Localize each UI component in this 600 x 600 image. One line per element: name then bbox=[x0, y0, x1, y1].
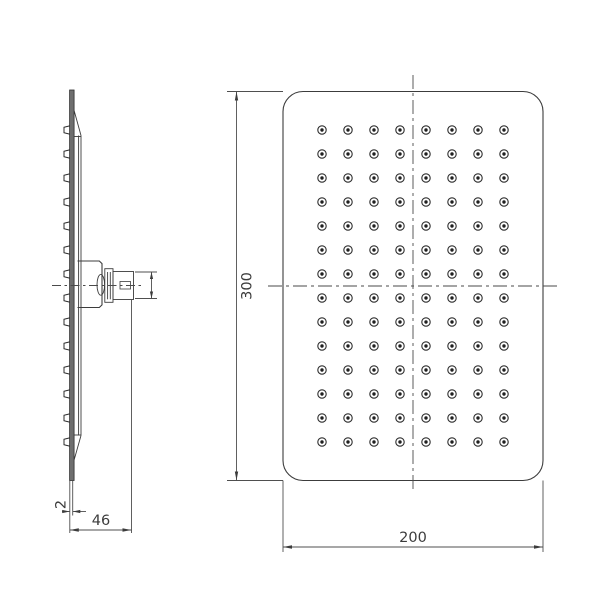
nozzle-center bbox=[372, 176, 375, 179]
nozzle-center bbox=[476, 440, 479, 443]
nozzle-center bbox=[346, 416, 349, 419]
nozzle-center bbox=[346, 248, 349, 251]
nozzle-center bbox=[398, 392, 401, 395]
nozzle-center bbox=[346, 224, 349, 227]
nozzle-center bbox=[372, 344, 375, 347]
nozzle-center bbox=[502, 200, 505, 203]
nozzle-center bbox=[450, 416, 453, 419]
nozzle-center bbox=[398, 344, 401, 347]
nozzle-center bbox=[502, 440, 505, 443]
dim-label-plate-thickness: 2 bbox=[54, 500, 70, 509]
nozzle-center bbox=[424, 224, 427, 227]
nozzle-center bbox=[398, 272, 401, 275]
nozzle-center bbox=[502, 368, 505, 371]
nozzle-center bbox=[502, 224, 505, 227]
side-nozzle bbox=[64, 390, 70, 398]
nozzle-center bbox=[450, 152, 453, 155]
nozzle-center bbox=[450, 368, 453, 371]
nozzle-center bbox=[502, 128, 505, 131]
nozzle-center bbox=[398, 320, 401, 323]
nozzle-center bbox=[502, 416, 505, 419]
side-nozzle bbox=[64, 294, 70, 302]
nozzle-center bbox=[450, 272, 453, 275]
nozzle-center bbox=[398, 128, 401, 131]
nozzle-center bbox=[476, 272, 479, 275]
dim-label-height: 300 bbox=[240, 272, 256, 300]
nozzle-center bbox=[424, 152, 427, 155]
nozzle-center bbox=[320, 128, 323, 131]
nozzle-center bbox=[372, 320, 375, 323]
dim-label-width: 200 bbox=[399, 530, 427, 546]
nozzle-center bbox=[502, 152, 505, 155]
nozzle-center bbox=[398, 152, 401, 155]
nozzle-center bbox=[424, 392, 427, 395]
nozzle-center bbox=[450, 344, 453, 347]
nozzle-center bbox=[372, 152, 375, 155]
nozzle-center bbox=[502, 176, 505, 179]
nozzle-center bbox=[450, 200, 453, 203]
nozzle-center bbox=[424, 200, 427, 203]
nozzle-center bbox=[372, 392, 375, 395]
nozzle-center bbox=[320, 320, 323, 323]
nozzle-center bbox=[320, 248, 323, 251]
nozzle-center bbox=[346, 128, 349, 131]
nozzle-center bbox=[372, 248, 375, 251]
dim-width: 200 bbox=[283, 481, 543, 553]
side-nozzle bbox=[64, 222, 70, 230]
nozzle-center bbox=[502, 248, 505, 251]
nozzle-center bbox=[450, 392, 453, 395]
technical-drawing-page: 2 46 300 bbox=[0, 0, 600, 600]
nozzle-center bbox=[372, 296, 375, 299]
nozzle-center bbox=[346, 392, 349, 395]
nozzle-center bbox=[346, 296, 349, 299]
dim-plate-thickness: 2 bbox=[54, 481, 87, 534]
technical-drawing-canvas: 2 46 300 bbox=[0, 0, 600, 600]
nozzle-center bbox=[320, 296, 323, 299]
nozzle-center bbox=[398, 296, 401, 299]
front-view: 300 200 bbox=[227, 75, 560, 552]
nozzle-center bbox=[346, 176, 349, 179]
nozzle-center bbox=[398, 224, 401, 227]
side-nozzles bbox=[64, 126, 70, 446]
nozzle-center bbox=[476, 200, 479, 203]
side-view: 2 46 bbox=[52, 90, 157, 533]
nozzle-center bbox=[476, 344, 479, 347]
nozzle-center bbox=[476, 248, 479, 251]
nozzle-center bbox=[424, 128, 427, 131]
nozzle-center bbox=[346, 440, 349, 443]
nozzle-center bbox=[320, 224, 323, 227]
nozzle-center bbox=[424, 368, 427, 371]
nozzle-center bbox=[346, 344, 349, 347]
nozzle-center bbox=[398, 248, 401, 251]
nozzle-center bbox=[450, 296, 453, 299]
nozzle-center bbox=[476, 152, 479, 155]
nozzle-center bbox=[320, 344, 323, 347]
nozzle-center bbox=[398, 200, 401, 203]
nozzle-center bbox=[424, 320, 427, 323]
nozzle-center bbox=[346, 200, 349, 203]
nozzle-center bbox=[476, 128, 479, 131]
side-nozzle bbox=[64, 174, 70, 182]
nozzle-center bbox=[502, 320, 505, 323]
nozzle-center bbox=[476, 224, 479, 227]
side-nozzle bbox=[64, 126, 70, 134]
nozzle-center bbox=[320, 200, 323, 203]
dim-depth: 46 bbox=[70, 300, 132, 534]
nozzle-center bbox=[320, 368, 323, 371]
nozzle-center bbox=[398, 176, 401, 179]
nozzle-center bbox=[398, 416, 401, 419]
nozzle-center bbox=[502, 344, 505, 347]
connector-dimension bbox=[135, 272, 157, 299]
side-nozzle bbox=[64, 270, 70, 278]
nozzle-center bbox=[476, 392, 479, 395]
nozzle-center bbox=[346, 272, 349, 275]
nozzle-center bbox=[398, 368, 401, 371]
nozzle-center bbox=[320, 176, 323, 179]
nozzle-center bbox=[450, 224, 453, 227]
nozzle-center bbox=[502, 296, 505, 299]
nozzle-center bbox=[502, 392, 505, 395]
side-nozzle bbox=[64, 438, 70, 446]
side-nozzle bbox=[64, 198, 70, 206]
nozzle-center bbox=[320, 152, 323, 155]
nozzle-center bbox=[502, 272, 505, 275]
nozzle-center bbox=[320, 440, 323, 443]
nozzle-center bbox=[450, 320, 453, 323]
nozzle-center bbox=[476, 296, 479, 299]
nozzle-center bbox=[372, 440, 375, 443]
nozzle-center bbox=[476, 320, 479, 323]
nozzle-center bbox=[476, 176, 479, 179]
side-nozzle bbox=[64, 366, 70, 374]
nozzle-center bbox=[424, 272, 427, 275]
nozzle-center bbox=[424, 416, 427, 419]
nozzle-center bbox=[398, 440, 401, 443]
nozzle-center bbox=[424, 440, 427, 443]
nozzle-center bbox=[424, 248, 427, 251]
nozzle-center bbox=[372, 128, 375, 131]
side-nozzle bbox=[64, 150, 70, 158]
nozzle-center bbox=[450, 176, 453, 179]
nozzle-center bbox=[424, 296, 427, 299]
nozzle-center bbox=[424, 344, 427, 347]
nozzle-center bbox=[372, 272, 375, 275]
nozzle-center bbox=[346, 368, 349, 371]
connector-ball-joint bbox=[97, 274, 105, 295]
nozzle-center bbox=[424, 176, 427, 179]
connector bbox=[52, 261, 144, 308]
nozzle-center bbox=[476, 416, 479, 419]
nozzle-center bbox=[346, 320, 349, 323]
side-nozzle bbox=[64, 414, 70, 422]
nozzle-center bbox=[320, 416, 323, 419]
nozzle-center bbox=[450, 248, 453, 251]
nozzle-center bbox=[346, 152, 349, 155]
nozzle-center bbox=[450, 128, 453, 131]
dim-label-depth: 46 bbox=[92, 513, 110, 529]
nozzle-center bbox=[450, 440, 453, 443]
side-nozzle bbox=[64, 342, 70, 350]
nozzle-center bbox=[320, 272, 323, 275]
nozzle-center bbox=[372, 368, 375, 371]
nozzle-center bbox=[320, 392, 323, 395]
nozzle-center bbox=[372, 200, 375, 203]
side-nozzle bbox=[64, 246, 70, 254]
nozzle-center bbox=[372, 416, 375, 419]
side-nozzle bbox=[64, 318, 70, 326]
nozzle-center bbox=[372, 224, 375, 227]
nozzle-center bbox=[476, 368, 479, 371]
